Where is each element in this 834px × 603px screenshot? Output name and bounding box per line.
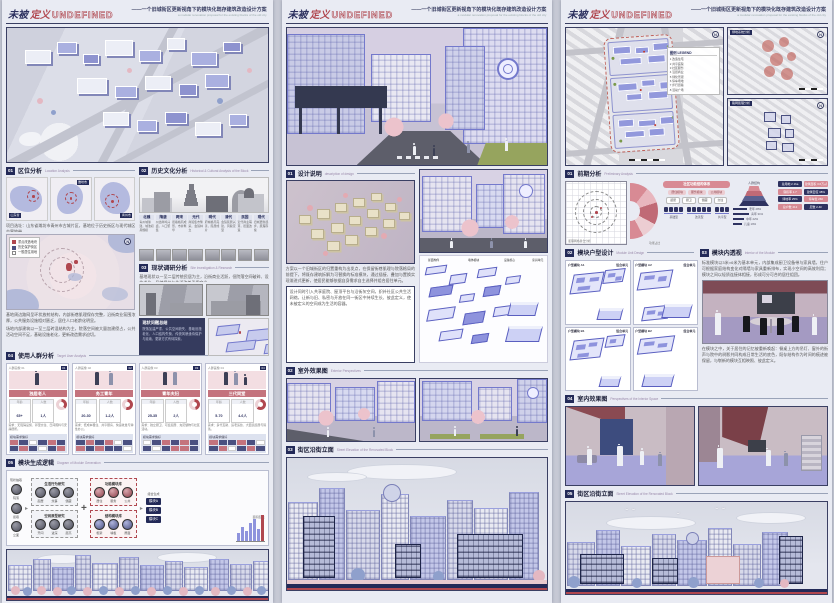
timeline-photo — [254, 249, 269, 261]
user-note: 需求：无障碍设施、邻里交往、日间照料与安静居所。 — [9, 424, 67, 432]
section-03-survey: 03 现状调研分析 Site Investigation & Research — [139, 263, 268, 272]
section-num: 01 — [6, 167, 15, 175]
section-01-location: 01 区位分析 Location Analysis — [6, 166, 135, 175]
share-donut — [56, 399, 67, 410]
location-maps: 山东省 潍坊市 青州市 — [6, 177, 135, 221]
interior-render-2 — [698, 406, 828, 486]
section-02-exterior: 02 室外效果图 Exterior Perspectives — [286, 366, 549, 375]
aerial-sketch — [286, 180, 415, 264]
section-04-interior: 04 室内效果图 Perspectives of the Interior Sp… — [565, 394, 828, 403]
subtitle-en: a modular renovation proposal for the ex… — [691, 14, 826, 17]
street-elevation-sketch — [6, 549, 269, 601]
panel-right: 未被定义 UNDEFINED ——一个旧城街区更新视角下的模块化既存建筑改造设计… — [561, 0, 832, 603]
module-preference-grid: 模块需求偏好 — [9, 434, 67, 453]
axon-label: 墙体模块 — [468, 258, 479, 262]
user-name: 务工青年 — [75, 390, 133, 397]
user-name: 独居老人 — [9, 390, 67, 397]
section-01-analysis: 01 前期分析 Preliminary Analysis — [565, 169, 828, 178]
section-en: Module Unit Design — [616, 251, 644, 255]
logo-cn-red: 定义 — [589, 6, 609, 21]
map-tag-district: 青州市 — [120, 213, 132, 218]
axon-label: 家具单元 — [532, 258, 543, 262]
scale-bar — [629, 159, 665, 161]
interior-render-1 — [565, 406, 695, 486]
timeline-photo — [156, 249, 171, 261]
timeline-item: 清代会馆民居兴建，风貌定型 — [221, 215, 236, 261]
share-donut — [122, 399, 133, 410]
user-name: 青年夫妇 — [141, 390, 199, 397]
panel3-header: 未被定义 UNDEFINED ——一个旧城街区更新视角下的模块化既存建筑改造设计… — [565, 3, 828, 24]
road-texture-plan: 路网肌理分析 N — [727, 98, 828, 166]
timeline-photo — [188, 249, 203, 261]
grid-caption: 肌理网格叠合分析 — [568, 239, 590, 243]
exterior-render-pair — [286, 378, 549, 442]
section-en: description of design — [325, 172, 354, 176]
module-preference-grid: 模块需求偏好 — [141, 434, 199, 453]
module-card-a2: 户型模块 A2组合单元 — [633, 260, 698, 325]
legend-item: 一般居住用地 — [12, 250, 37, 255]
module-card-a1: 户型模块 A1组合单元 — [565, 260, 630, 325]
design-paragraph-1: 方案以一个旧城街区的归置重构为出发点，在保留街巷肌理与院落格局的前提下，将既存建… — [286, 266, 415, 284]
section-title: 历史文化分析 — [151, 166, 187, 175]
map-province: 潍坊市 — [50, 177, 92, 221]
site-block-1 — [607, 38, 670, 77]
flow-group-behavior: 生活行为研究 起居 炊事 储藏 — [31, 478, 78, 506]
plus-icon: + — [81, 503, 87, 514]
green-system-plan: 绿地系统分析 N — [727, 27, 828, 95]
plan-caption: 绿地系统分析 — [730, 30, 752, 35]
scale-bar — [799, 159, 823, 161]
radial-fan-chart: 功能占比 — [630, 181, 660, 245]
panel2-header: 未被定义 UNDEFINED ——一个旧城街区更新视角下的模块化既存建筑改造设计… — [286, 3, 549, 24]
section-en: Site Investigation & Research — [190, 266, 232, 270]
timeline-item: 隋唐州治商埠兴盛，人口聚集 — [156, 215, 171, 261]
map-city: 青州市 — [94, 177, 136, 221]
user-photo — [75, 371, 133, 389]
section-title: 模块生成逻辑 — [18, 458, 54, 467]
flow-group-prototype: 空间原型研究 开间 进深 层高 — [31, 510, 78, 538]
arrow-right-icon: ▸ — [140, 505, 143, 512]
pyramid-caption: 人群结构 — [748, 181, 760, 185]
logo: 未被定义 UNDEFINED — [8, 6, 114, 21]
scale-bar — [799, 88, 823, 90]
design-paragraph-2-box: 设计同时引入共享庭院、屋顶平台与沿街灰空间，织补社区公共生活网络，让新与旧、私密… — [286, 286, 415, 363]
timeline-item: 现代旧城更新起步，肌理存续 — [254, 215, 269, 261]
site-block-2 — [610, 74, 673, 113]
section-en: Street Elevation of the Renovated Block — [616, 492, 672, 496]
map-china: 山东省 — [6, 177, 48, 221]
exterior-render-2 — [419, 378, 549, 442]
aerial-isometric-render — [6, 27, 269, 163]
module-paragraph-1: 标准模块以3米×6米为基本单元，内部集成厨卫设备带与家具墙，住户可根据家庭结构变… — [702, 260, 828, 278]
logo-cn-red: 定义 — [310, 6, 330, 21]
site-plans: 图例 LEGEND 1 改造住宅 2 共享庭院 3 社区服务 4 沿街商业 5 … — [565, 27, 828, 166]
section-en: Diagram of Module Generation — [57, 461, 101, 465]
exploded-axonometric: 屋面构件 墙体模块 设备核心 家具单元 — [419, 255, 548, 363]
section-en: Location Analysis — [45, 169, 70, 173]
flow-group-function-modules: 功能模块库 居住 服务 公共 — [90, 478, 137, 506]
module-card-b2: 户型模块 B2组合单元 — [633, 327, 698, 392]
section-cut-3 — [457, 534, 523, 578]
user-photo — [141, 371, 199, 389]
user-photo — [208, 371, 266, 389]
site-photos — [139, 284, 268, 316]
section-title: 街区沿街立面 — [298, 445, 334, 454]
section-num: 01 — [565, 170, 574, 178]
panel-left: 未被定义 UNDEFINED ——一个旧城街区更新视角下的模块化既存建筑改造设计… — [2, 0, 273, 603]
section-num: 02 — [565, 249, 574, 257]
historic-photo-montage — [139, 177, 268, 213]
axon-label: 设备核心 — [504, 258, 515, 262]
section-01-description: 01 设计说明 description of design — [286, 169, 415, 178]
section-cut-1 — [303, 516, 335, 578]
section-num: 03 — [286, 446, 295, 454]
flow-group-structure-modules: 结构模块库 框架 墙板 屋面 — [90, 510, 137, 538]
analysis-diagrams: 肌理网格叠合分析 功能占比 社区功能结构体系 居住模块 服务模块 公共模块 起居… — [565, 181, 828, 245]
timeline-item: 北魏青州城肇建，城池初具规模 — [139, 215, 154, 261]
module-cards: 户型模块 A1组合单元 户型模块 A2组合单元 — [565, 260, 697, 391]
subtitle-en: a modular renovation proposal for the ex… — [411, 14, 546, 17]
panel-middle: 未被定义 UNDEFINED ——一个旧城街区更新视角下的模块化既存建筑改造设计… — [282, 0, 553, 603]
history-column: 02 历史文化分析 Historical & Cultural Analysis… — [139, 166, 268, 348]
poster-board: 未被定义 UNDEFINED ——一个旧城街区更新视角下的模块化既存建筑改造设计… — [0, 0, 834, 603]
section-en: Target User Analysis — [57, 354, 86, 358]
grid-overlay-diagram: 肌理网格叠合分析 — [565, 181, 627, 245]
section-title: 使用人群分析 — [18, 351, 54, 360]
timeline-item: 元代商贸集市繁荣，会馆林立 — [188, 215, 203, 261]
section-en: Preliminary Analysis — [604, 172, 633, 176]
logo-cn-dark: 未被 — [8, 6, 28, 21]
street-elevation-section-2: ⌄⌄ ⌄ ⌄⌄ — [565, 501, 828, 595]
street-perspective-render — [286, 27, 549, 166]
map-legend: 重点改造地块 历史保护街区 一般居住用地 — [9, 237, 40, 258]
timeline-item: 明代府城格局完善，民居成片 — [205, 215, 220, 261]
north-arrow-icon: N — [817, 31, 824, 38]
arrow-right-icon: ▸ — [25, 505, 28, 512]
org-title: 社区功能结构体系 — [663, 181, 730, 188]
user-group-cards: 人群画像 0101 独居老人 年龄65+ 人数1人 需求：无障碍设施、邻里交往、… — [6, 363, 269, 455]
north-arrow-icon: N — [712, 31, 719, 38]
module-preference-grid: 模块需求偏好 — [208, 434, 266, 453]
indicator-table: 总用地 2.1ha建筑面积 3.6万㎡ 容积率 1.7建筑密度 38% 绿地率 … — [778, 181, 828, 245]
timeline-photo — [139, 249, 154, 261]
module-paragraph-2: 在模块之中，关于居住的记忆被重新唤起：餐桌上方的吊灯、窗外的街声与院中的树影共同… — [702, 346, 828, 364]
section-title: 模块户型设计 — [577, 248, 613, 257]
section-title: 区位分析 — [18, 166, 42, 175]
section-en: Exterior Perspectives — [331, 369, 361, 373]
section-num: 03 — [139, 264, 148, 272]
logo: 未被定义 UNDEFINED — [567, 6, 673, 21]
site-block-3 — [612, 111, 675, 150]
bird-icon: ⌄ — [675, 510, 682, 516]
section-en: Perspectives of the Interior Space — [610, 397, 658, 401]
section-cut-2 — [395, 544, 421, 578]
section-num: 02 — [139, 167, 148, 175]
user-note: 需求：低成本租住、共享厨房、快递收发与弹性办公。 — [75, 424, 133, 432]
section-cut-3 — [779, 536, 803, 584]
master-plan: 图例 LEGEND 1 改造住宅 2 共享庭院 3 社区服务 4 沿街商业 5 … — [565, 27, 724, 166]
section-title: 室内效果图 — [577, 394, 607, 403]
population-pyramid: 人群结构 老年 28% 青年 31% 中年 22% 儿童 19% — [733, 181, 775, 245]
subtitle: ——一个旧城街区更新视角下的模块化既存建筑改造设计方案 a modular re… — [691, 8, 826, 17]
small-analysis-plans: 绿地系统分析 N 路网肌理分析 — [727, 27, 828, 166]
site-photo-2 — [206, 284, 269, 316]
subtitle-en: a modular renovation proposal for the ex… — [132, 14, 267, 17]
logo: 未被定义 UNDEFINED — [288, 6, 394, 21]
section-05-elevation: 05 街区沿街立面 Street Elevation of the Renova… — [565, 489, 828, 498]
location-column: 01 区位分析 Location Analysis 山东省 — [6, 166, 135, 348]
dining-room-render — [702, 280, 828, 344]
module-chip: 模块C — [146, 516, 161, 523]
section-num: 04 — [565, 395, 574, 403]
axon-label: 屋面构件 — [428, 258, 439, 262]
plan-legend-title: 图例 LEGEND — [670, 50, 717, 56]
flow-output: 组合生成 模块A 模块B 模块C — [146, 493, 161, 523]
section-num: 05 — [565, 490, 574, 498]
panel1-header: 未被定义 UNDEFINED ——一个旧城街区更新视角下的模块化既存建筑改造设计… — [6, 3, 269, 24]
share-donut — [255, 399, 266, 410]
section-en: Street Elevation of the Renovated Block — [337, 448, 393, 452]
section-02-history: 02 历史文化分析 Historical & Cultural Analysis… — [139, 166, 268, 175]
section-title: 室外效果图 — [298, 366, 328, 375]
area-ratio-bar-chart — [236, 520, 265, 542]
user-card-4: 人群画像 0404 三代同堂 年龄5-70 人数4-6人 需求：多代互助、适老适… — [205, 363, 268, 455]
plan-caption: 路网肌理分析 — [730, 101, 752, 106]
logo-cn-red: 定义 — [30, 6, 50, 21]
section-num: 05 — [6, 459, 15, 467]
timeline-photo — [205, 249, 220, 261]
timeline-item: 两宋街巷格局成形，市井繁华 — [172, 215, 187, 261]
user-note: 需求：独立厨卫、可变起居、充足储物与社区活动。 — [141, 424, 199, 432]
timeline-photo — [238, 249, 253, 261]
plan-legend: 图例 LEGEND 1 改造住宅 2 共享庭院 3 社区服务 4 沿街商业 5 … — [667, 47, 720, 95]
section-05-flow: 05 模块生成逻辑 Diagram of Module Generation — [6, 458, 269, 467]
user-name: 三代同堂 — [208, 390, 266, 397]
module-chip: 模块A — [146, 498, 161, 505]
logo-cn-dark: 未被 — [567, 6, 587, 21]
section-num: 04 — [6, 352, 15, 360]
site-photo-1 — [139, 284, 202, 316]
survey-note: 基地现状以一至二层传统民居为主，沿街商业活跃，但院落空间破碎、设施老化，风貌保护… — [139, 274, 268, 282]
section-num: 02 — [286, 367, 295, 375]
section-num: 03 — [700, 249, 709, 257]
module-zone: 户型模块 A1组合单元 户型模块 A2组合单元 — [565, 260, 828, 391]
problem-summary-text: 院落加建严重、公共空间缺失、基础设施老化、人口结构失衡，传统风貌亟待保护与延续，… — [142, 327, 201, 341]
module-preference-grid: 模块需求偏好 — [75, 434, 133, 453]
section-03-elevation: 03 街区沿街立面 Street Elevation of the Renova… — [286, 445, 549, 454]
bird-icon: ⌄⌄ — [624, 506, 637, 512]
section-num: 01 — [286, 170, 295, 178]
section-title: 现状调研分析 — [151, 263, 187, 272]
user-card-1: 人群画像 0101 独居老人 年龄65+ 人数1人 需求：无障碍设施、邻里交往、… — [6, 363, 69, 455]
user-photo — [9, 371, 67, 389]
user-note: 需求：多代互助、适老适幼、大面宽起居与院落。 — [208, 424, 266, 432]
logo-en: UNDEFINED — [52, 10, 114, 20]
city-map: 重点改造地块 历史保护街区 一般居住用地 N — [6, 234, 135, 310]
share-donut — [189, 399, 200, 410]
map-note-1: 基地周边路网呈环状放射结构，内部街巷肌理保存完整，沿街商业氛围浓厚，公共服务设施… — [6, 312, 135, 324]
module-generation-flowchart: 现状抽取 院落 街巷 立面 ▸ 生活行为研究 起居 炊事 储藏 空间原型研究 开… — [6, 470, 269, 546]
timeline-photo — [221, 249, 236, 261]
section-03-module-interior: 03 模块内透视 Interior of the Module — [700, 248, 828, 257]
user-card-2: 人群画像 0202 务工青年 年龄20-30 人数1-2人 需求：低成本租住、共… — [72, 363, 135, 455]
section-title: 模块内透视 — [712, 248, 742, 257]
analysis-zone: 01 区位分析 Location Analysis 山东省 — [6, 166, 269, 348]
section-title: 设计说明 — [298, 169, 322, 178]
problem-summary-title: 现状问题总结 — [142, 320, 201, 326]
section-title: 前期分析 — [577, 169, 601, 178]
north-arrow-icon: N — [817, 102, 824, 109]
timeline-item: 民国近代商业萌芽，街面改造 — [238, 215, 253, 261]
history-timeline: 北魏青州城肇建，城池初具规模 隋唐州治商埠兴盛，人口聚集 两宋街巷格局成形，市井… — [139, 215, 268, 261]
user-card-3: 人群画像 0303 青年夫妇 年龄25-35 人数2人 需求：独立厨卫、可变起居… — [139, 363, 202, 455]
section-en: Historical & Cultural Analysis of the Bl… — [190, 169, 248, 173]
logo-cn-dark: 未被 — [288, 6, 308, 21]
section-cut-1 — [580, 554, 624, 584]
map-note-2: 场地内部建筑以一至三层砖混结构为主，院落空间被大量加建侵占，公共活动空间不足，基… — [6, 326, 135, 338]
function-structure-chart: 社区功能结构体系 居住模块 服务模块 公共模块 起居 厨卫 储藏 交往 基础型 … — [663, 181, 730, 245]
logo-en: UNDEFINED — [611, 10, 673, 20]
fan-caption: 功能占比 — [649, 241, 660, 245]
design-paragraph-2: 设计同时引入共享庭院、屋顶平台与沿街灰空间，织补社区公共生活网络，让新与旧、私密… — [290, 289, 411, 307]
subtitle: ——一个旧城街区更新视角下的模块化既存建筑改造设计方案 a modular re… — [132, 8, 267, 17]
design-description-column: 01 设计说明 description of design 方案以一个旧城街区的… — [286, 169, 415, 363]
module-interior-column: 标准模块以3米×6米为基本单元，内部集成厨卫设备带与家具墙，住户可根据家庭结构变… — [702, 260, 828, 391]
module-card-b1: 户型模块 B1组合单元 — [565, 327, 630, 392]
exterior-render-1 — [286, 378, 416, 442]
street-elevation-section — [286, 457, 549, 591]
site-axon-map — [208, 318, 269, 356]
section-cut-2 — [652, 558, 678, 584]
section-title: 街区沿街立面 — [577, 489, 613, 498]
axon-column: 屋面构件 墙体模块 设备核心 家具单元 — [419, 169, 548, 363]
flow-source: 现状抽取 院落 街巷 立面 — [10, 479, 22, 537]
bird-icon: ⌄⌄ — [714, 505, 727, 511]
logo-en: UNDEFINED — [332, 10, 394, 20]
section-02-module-design: 02 模块户型设计 Module Unit Design — [565, 248, 693, 257]
module-chip: 模块B — [146, 507, 161, 514]
subtitle: ——一个旧城街区更新视角下的模块化既存建筑改造设计方案 a modular re… — [411, 8, 546, 17]
design-zone: 01 设计说明 description of design 方案以一个旧城街区的… — [286, 169, 549, 363]
interior-render-pair — [565, 406, 828, 486]
section-en: Interior of the Module — [745, 251, 775, 255]
maps-caption: 项目选址：山东省潍坊市青州市古城片区，基地位于历史街区与现代城区交界地带。 — [6, 223, 135, 232]
map-tag-province: 山东省 — [9, 213, 21, 218]
street-render-small — [419, 169, 548, 253]
map-tag-city: 潍坊市 — [77, 180, 89, 185]
timeline-photo — [172, 249, 187, 261]
